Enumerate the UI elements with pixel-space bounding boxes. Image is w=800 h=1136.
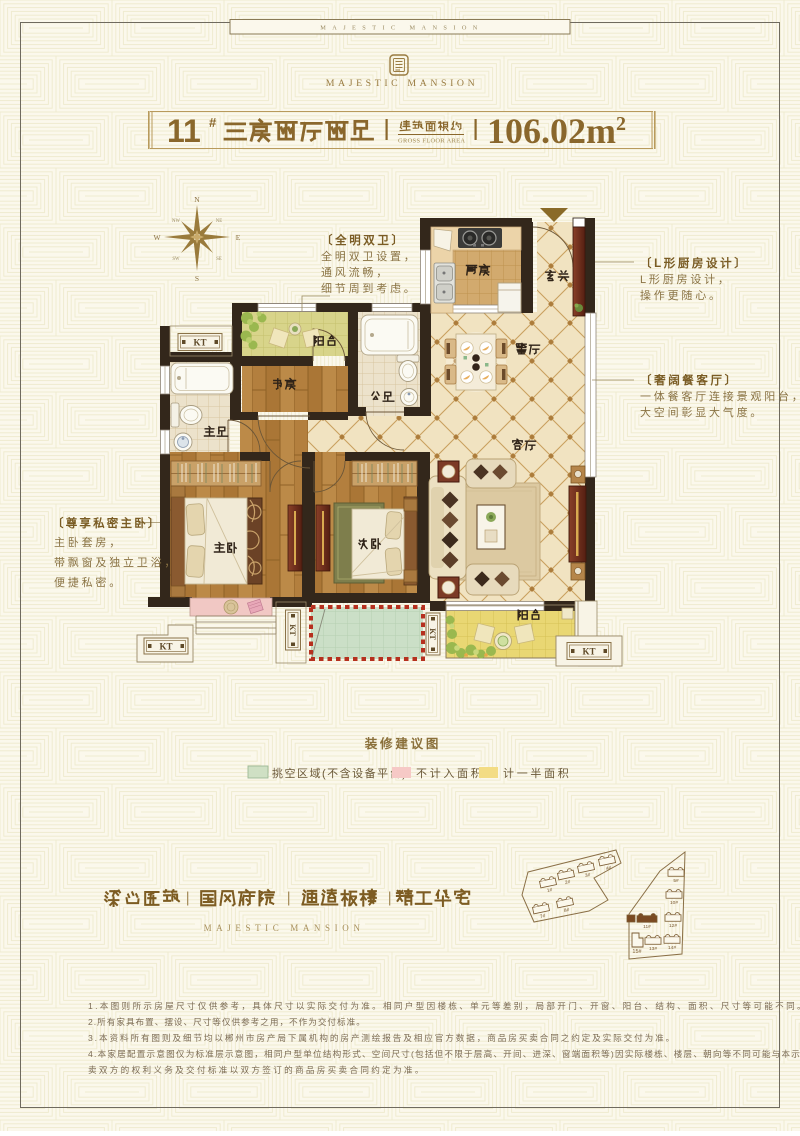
svg-text:11#: 11# (643, 924, 651, 930)
svg-text:大空间彰显大气度。: 大空间彰显大气度。 (640, 405, 764, 419)
svg-text:2.所有家具布置、摆设、尺寸等仅供参考之用，不作为交付标准。: 2.所有家具布置、摆设、尺寸等仅供参考之用，不作为交付标准。 (88, 1016, 366, 1027)
svg-text:S: S (195, 274, 199, 283)
svg-text:挑空区域(不含设备平台): 挑空区域(不含设备平台) (272, 766, 407, 780)
svg-text:KT: KT (288, 624, 297, 636)
svg-text:N: N (194, 195, 200, 204)
svg-text:一体餐客厅连接景观阳台，: 一体餐客厅连接景观阳台， (640, 389, 800, 403)
svg-text:〔全明双卫〕: 〔全明双卫〕 (321, 233, 406, 247)
svg-text:#: # (209, 115, 217, 130)
svg-text:KT: KT (159, 641, 172, 651)
svg-text:L形厨房设计，: L形厨房设计， (640, 273, 732, 286)
svg-text:计一半面积: 计一半面积 (503, 766, 572, 780)
svg-text:NW: NW (172, 219, 180, 224)
svg-text:〔L形厨房设计〕: 〔L形厨房设计〕 (640, 256, 748, 270)
svg-text:不计入面积: 不计入面积 (416, 767, 485, 780)
svg-text:SE: SE (216, 257, 222, 262)
svg-text:4.本家居配置示意图仅为标准层示意图，相同户型单位结构形式、: 4.本家居配置示意图仅为标准层示意图，相同户型单位结构形式、空间尺寸(包括但不限… (88, 1048, 800, 1059)
svg-text:14#: 14# (668, 945, 676, 951)
svg-text:MAJESTIC MANSION: MAJESTIC MANSION (204, 923, 365, 933)
svg-text:11: 11 (167, 113, 201, 149)
svg-text:KT: KT (193, 337, 206, 347)
svg-text:〔尊享私密主卧〕: 〔尊享私密主卧〕 (52, 516, 162, 530)
svg-text:便捷私密。: 便捷私密。 (54, 575, 123, 589)
svg-text:卖双方的权利义务及交付标准以双方签订的商品房买卖合同约定为准: 卖双方的权利义务及交付标准以双方签订的商品房买卖合同约定为准。 (88, 1064, 426, 1075)
svg-text:13#: 13# (649, 946, 657, 952)
svg-text:3.本资料所有图则及细节均以郴州市房产局下属机构的房产测绘报: 3.本资料所有图则及细节均以郴州市房产局下属机构的房产测绘报告及相应官方数据，商… (88, 1032, 676, 1043)
svg-text:KT: KT (428, 628, 437, 640)
svg-text:MAJESTIC MANSION: MAJESTIC MANSION (320, 25, 483, 32)
svg-text:细节周到考虑。: 细节周到考虑。 (321, 282, 418, 295)
svg-text:1.本图则所示房屋尺寸仅供参考，具体尺寸以实际交付为准。相同: 1.本图则所示房屋尺寸仅供参考，具体尺寸以实际交付为准。相同户型因楼栋、单元等差… (88, 1000, 800, 1011)
svg-text:KT: KT (582, 646, 595, 656)
svg-text:〔奢阔餐客厅〕: 〔奢阔餐客厅〕 (640, 373, 739, 387)
svg-text:15#: 15# (632, 949, 642, 955)
svg-text:MAJESTIC MANSION: MAJESTIC MANSION (326, 78, 479, 89)
svg-text:通风流畅，: 通风流畅， (321, 265, 390, 279)
svg-text:带飘窗及独立卫浴，: 带飘窗及独立卫浴， (54, 555, 178, 569)
svg-text:全明双卫设置，: 全明双卫设置， (321, 249, 418, 263)
svg-text:主卧套房，: 主卧套房， (54, 536, 123, 549)
svg-text:SW: SW (172, 257, 180, 262)
svg-text:12#: 12# (669, 923, 677, 929)
svg-text:106.02m2: 106.02m2 (487, 111, 626, 151)
svg-text:操作更随心。: 操作更随心。 (640, 288, 723, 302)
svg-text:5#: 5# (673, 878, 679, 884)
svg-text:NE: NE (216, 219, 222, 224)
svg-text:W: W (153, 233, 161, 242)
svg-text:装修建议图: 装修建议图 (364, 736, 442, 751)
svg-text:GROSS FLOOR AREA: GROSS FLOOR AREA (398, 138, 465, 145)
svg-text:10#: 10# (670, 900, 678, 906)
svg-text:E: E (236, 233, 241, 242)
